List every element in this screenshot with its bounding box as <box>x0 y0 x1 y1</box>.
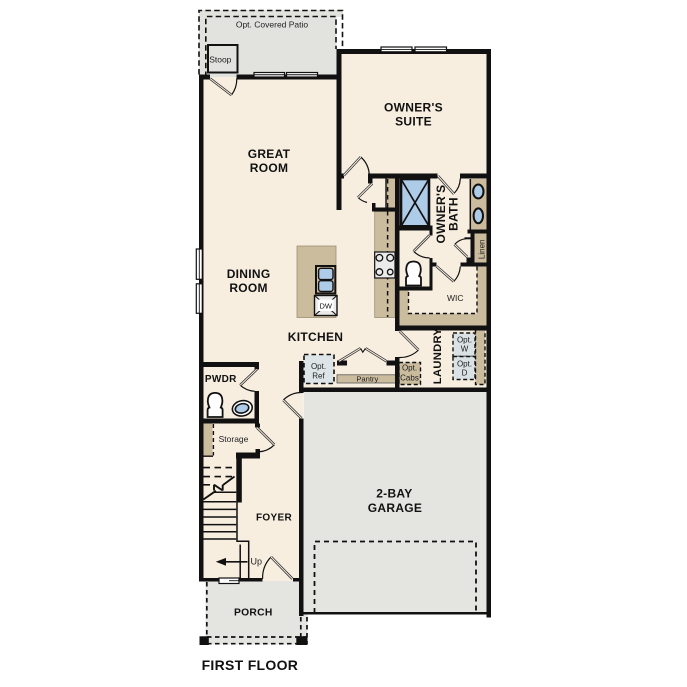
svg-text:D: D <box>462 369 468 378</box>
svg-text:BATH: BATH <box>447 197 461 231</box>
svg-text:Opt. Covered Patio: Opt. Covered Patio <box>236 20 309 30</box>
svg-text:Opt.: Opt. <box>311 362 326 371</box>
svg-text:GREAT: GREAT <box>248 147 291 161</box>
svg-text:FOYER: FOYER <box>256 513 292 524</box>
svg-text:OWNER'S: OWNER'S <box>384 101 443 115</box>
svg-text:PWDR: PWDR <box>205 374 237 385</box>
svg-text:FIRST FLOOR: FIRST FLOOR <box>202 657 299 673</box>
svg-text:Opt.: Opt. <box>457 360 472 369</box>
svg-text:ROOM: ROOM <box>229 281 268 295</box>
svg-text:Opt.: Opt. <box>457 336 472 345</box>
svg-text:GARAGE: GARAGE <box>368 501 422 515</box>
svg-text:PORCH: PORCH <box>234 607 273 618</box>
svg-text:ROOM: ROOM <box>250 161 289 175</box>
svg-text:2-BAY: 2-BAY <box>376 487 412 501</box>
svg-text:Storage: Storage <box>219 434 249 444</box>
svg-text:KITCHEN: KITCHEN <box>288 330 343 344</box>
svg-text:Ref: Ref <box>312 372 325 381</box>
svg-text:Pantry: Pantry <box>356 375 378 384</box>
svg-text:Up: Up <box>251 557 263 567</box>
svg-text:Linen: Linen <box>478 240 487 260</box>
svg-text:Cabs: Cabs <box>400 374 419 383</box>
svg-text:DINING: DINING <box>227 267 271 281</box>
svg-text:WIC: WIC <box>447 293 464 303</box>
svg-text:Opt.: Opt. <box>402 363 417 372</box>
svg-text:W: W <box>461 345 469 354</box>
svg-text:Stoop: Stoop <box>209 55 231 65</box>
svg-text:SUITE: SUITE <box>395 115 432 129</box>
svg-text:DW: DW <box>319 302 332 311</box>
svg-text:LAUNDRY: LAUNDRY <box>432 328 444 385</box>
